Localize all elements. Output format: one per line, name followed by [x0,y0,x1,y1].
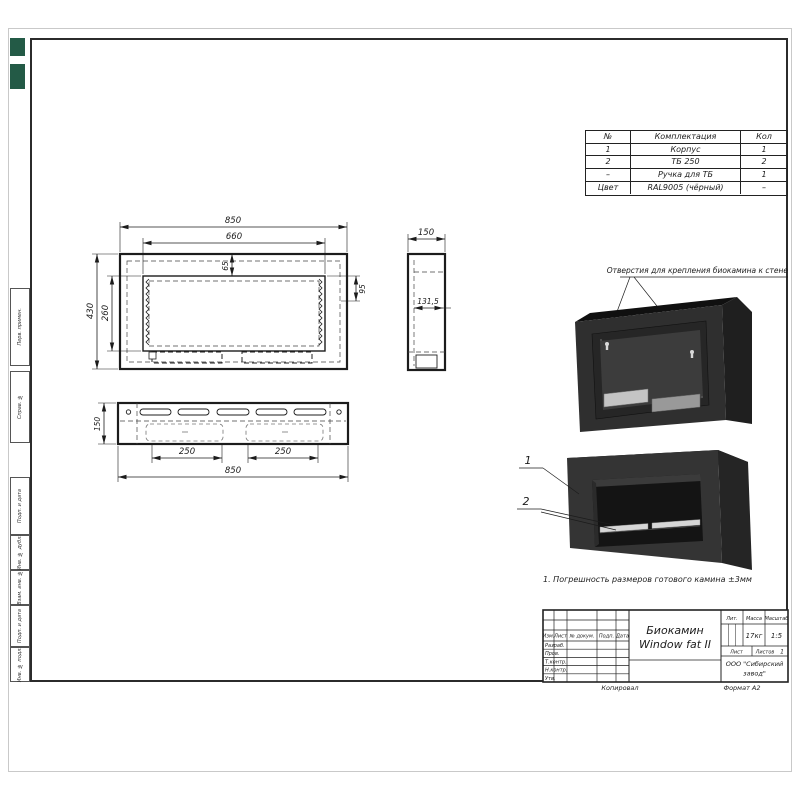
tb-header-docnum: № докум. [569,634,595,640]
tb-mass-value: 17кг [746,632,763,640]
tb-header-list: Лист [553,634,568,640]
tb-sheet-label: Лист [729,650,744,656]
front-view: 850 660 65 95 430 260 [86,216,367,369]
side-view: 150 131,5 [408,228,451,370]
tb-row-tkontr: Т.контр. [545,659,567,665]
tb-row-utv: Утв. [545,676,556,682]
dim-250-left: 250 [179,447,195,457]
dim-850-front: 850 [225,216,241,226]
dim-250-right: 250 [275,447,291,457]
drawing-views: 850 660 65 95 430 260 [0,0,800,800]
dim-660: 660 [226,232,242,242]
dim-850-bottom: 850 [225,466,241,476]
dim-260: 260 [101,305,111,321]
back-3d-view: Отверстия для крепления биокамина к стен… [575,266,788,432]
tb-scale-value: 1:5 [771,632,783,640]
tb-mass-label: Масса [746,616,762,622]
tb-scale-label: Масштаб [765,616,789,622]
copied-label: Копировал [601,684,638,692]
tb-row-nkontr: Н.контр. [545,668,567,674]
drawing-sheet: Перв. примен. Справ. № Подп. и дата Инв.… [0,0,800,800]
tb-lit-label: Лит. [725,616,738,622]
bottom-view: 250 250 850 150 [93,403,348,482]
dim-65: 65 [221,261,230,271]
tolerance-note: 1. Погрешность размеров готового камина … [543,575,752,584]
company-name-line2: завод" [743,670,766,678]
format-label: Формат А2 [723,684,760,692]
mounting-holes-annotation: Отверстия для крепления биокамина к стен… [607,266,789,275]
doc-title-line2: Window fat II [639,638,711,651]
dim-131-5: 131,5 [417,297,439,306]
doc-title-line1: Биокамин [646,624,703,637]
tb-sheets-label: Листов [755,650,775,656]
dim-150-bottom: 150 [93,417,102,432]
tb-header-izm: Изм. [543,634,555,640]
dim-430: 430 [86,303,96,319]
callout-2: 2 [523,495,530,508]
tb-sheets-value: 1 [780,649,784,656]
tb-header-data: Дата [615,634,629,640]
company-name-line1: ООО "Сибирский [726,660,783,668]
tb-row-razrab: Разраб. [545,643,565,649]
dim-95: 95 [358,284,367,294]
tb-header-podp: Подп. [599,634,614,640]
callout-1: 1 [525,454,532,467]
dim-150-side: 150 [418,228,434,238]
front-3d-view: 1 2 1. Погрешность размеров готового кам… [517,450,752,584]
tb-row-prov: Пров. [545,651,560,657]
